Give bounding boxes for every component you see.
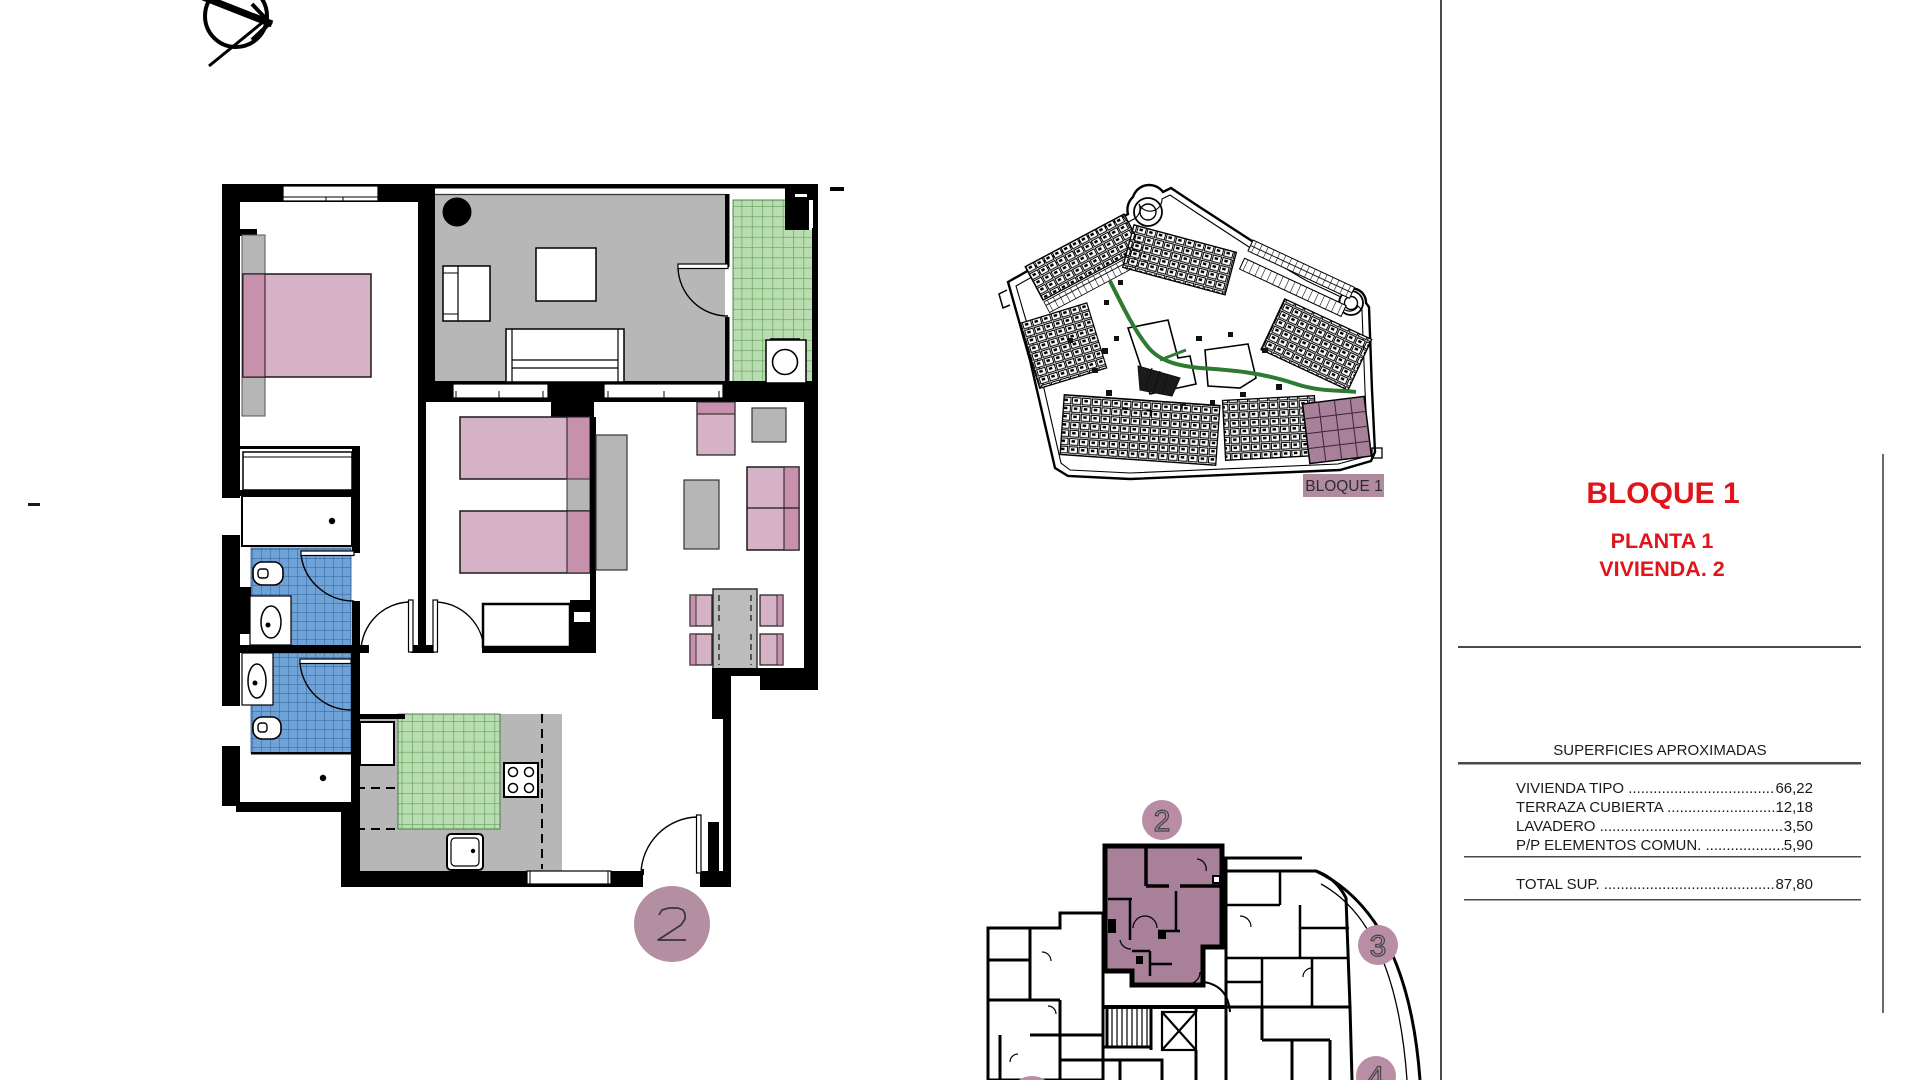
svg-text:PLANTA 1: PLANTA 1 <box>1611 529 1714 553</box>
svg-text:12,18: 12,18 <box>1775 799 1813 816</box>
svg-text:2: 2 <box>1154 805 1171 838</box>
svg-text:BLOQUE 1: BLOQUE 1 <box>1586 477 1739 510</box>
svg-text:5,90: 5,90 <box>1784 837 1813 854</box>
svg-text:4: 4 <box>1368 1061 1385 1080</box>
svg-text:P/P ELEMENTOS COMUN. .........: P/P ELEMENTOS COMUN. ................... <box>1516 837 1785 854</box>
svg-text:VIVIENDA. 2: VIVIENDA. 2 <box>1599 557 1724 581</box>
svg-text:SUPERFICIES APROXIMADAS: SUPERFICIES APROXIMADAS <box>1553 742 1766 759</box>
svg-text:3: 3 <box>1370 930 1387 963</box>
svg-text:BLOQUE 1: BLOQUE 1 <box>1305 478 1383 495</box>
svg-text:87,80: 87,80 <box>1775 876 1813 893</box>
svg-text:66,22: 66,22 <box>1775 780 1813 797</box>
svg-text:3,50: 3,50 <box>1784 818 1813 835</box>
svg-text:TOTAL SUP. ...................: TOTAL SUP. .............................… <box>1516 876 1775 893</box>
svg-text:TERRAZA CUBIERTA .............: TERRAZA CUBIERTA .......................… <box>1516 799 1776 816</box>
svg-text:VIVIENDA TIPO ................: VIVIENDA TIPO ..........................… <box>1516 780 1774 797</box>
svg-text:LAVADERO .....................: LAVADERO ...............................… <box>1516 818 1783 835</box>
